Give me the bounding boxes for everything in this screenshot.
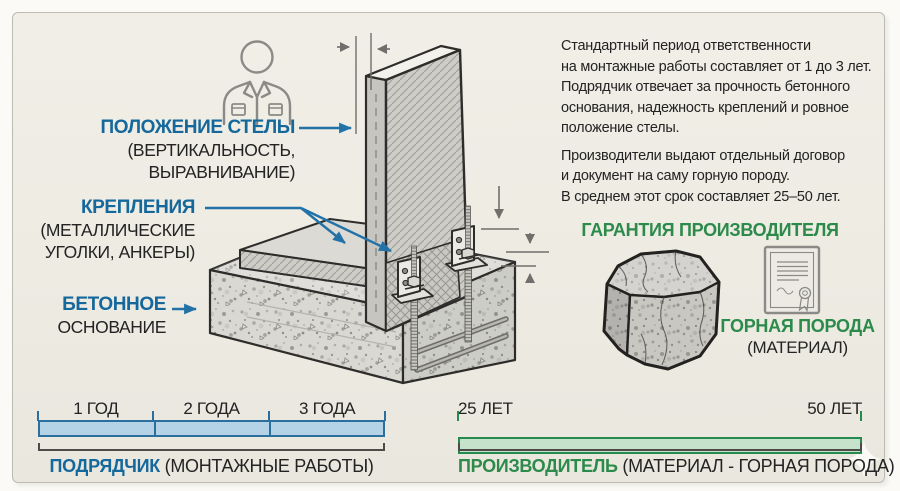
callout-title: ПОЛОЖЕНИЕ СТЕЛЫ — [40, 117, 295, 139]
contractor-label-note: (МОНТАЖНЫЕ РАБОТЫ) — [165, 456, 374, 476]
worker-icon — [224, 42, 290, 125]
info-line: В среднем этот срок составляет 25–50 лет… — [561, 187, 891, 208]
manufacturer-label-note: (МАТЕРИАЛ - ГОРНАЯ ПОРОДА) — [622, 456, 894, 476]
material-title: ГОРНАЯ ПОРОДА — [700, 316, 895, 337]
callout-line: (МЕТАЛЛИЧЕСКИЕ — [28, 219, 195, 241]
material-sub: (МАТЕРИАЛ) — [700, 337, 895, 358]
callout-stele-position: ПОЛОЖЕНИЕ СТЕЛЫ (ВЕРТИКАЛЬНОСТЬ, ВЫРАВНИ… — [40, 117, 295, 183]
contractor-label: ПОДРЯДЧИК — [49, 456, 159, 476]
callout-fasteners: КРЕПЛЕНИЯ (МЕТАЛЛИЧЕСКИЕ УГОЛКИ, АНКЕРЫ) — [28, 197, 195, 263]
material-caption: ГОРНАЯ ПОРОДА (МАТЕРИАЛ) — [700, 316, 895, 358]
callout-line: (ВЕРТИКАЛЬНОСТЬ, — [40, 139, 295, 161]
callout-title: КРЕПЛЕНИЯ — [28, 197, 195, 219]
info-line: положение стелы. — [561, 118, 891, 139]
callout-line: ВЫРАВНИВАНИЕ) — [40, 161, 295, 183]
manufacturer-label: ПРОИЗВОДИТЕЛЬ — [458, 456, 618, 476]
tick-label: 3 ГОДА — [269, 399, 385, 419]
contractor-timeline-bar — [38, 420, 385, 437]
info-line: основания, надежность креплений и ровное — [561, 98, 891, 119]
callout-line: УГОЛКИ, АНКЕРЫ) — [28, 241, 195, 263]
info-line: и документ на саму горную породу. — [561, 166, 891, 187]
bar-divider — [154, 422, 156, 435]
tick-label: 25 ЛЕТ — [458, 399, 513, 419]
tick-label: 1 ГОД — [38, 399, 154, 419]
manufacturer-timeline-ticks: 25 ЛЕТ 50 ЛЕТ — [458, 399, 862, 419]
info-text-block: Стандартный период ответственности на мо… — [561, 36, 891, 207]
info-line: Подрядчик отвечает за прочность бетонног… — [561, 77, 891, 98]
info-paragraph-1: Стандартный период ответственности на мо… — [561, 36, 891, 139]
tick-label: 50 ЛЕТ — [807, 399, 862, 419]
certificate-icon — [765, 247, 819, 313]
manufacturer-bracket — [458, 443, 862, 451]
contractor-caption: ПОДРЯДЧИК (МОНТАЖНЫЕ РАБОТЫ) — [38, 456, 385, 477]
warranty-heading: ГАРАНТИЯ ПРОИЗВОДИТЕЛЯ — [565, 220, 855, 241]
callout-foundation: БЕТОННОЕ ОСНОВАНИЕ — [18, 294, 166, 338]
manufacturer-caption: ПРОИЗВОДИТЕЛЬ (МАТЕРИАЛ - ГОРНАЯ ПОРОДА) — [458, 456, 862, 477]
info-line: Стандартный период ответственности — [561, 36, 891, 57]
timeline-tick — [457, 411, 459, 421]
contractor-timeline-ticks: 1 ГОД 2 ГОДА 3 ГОДА — [38, 399, 385, 419]
callout-title: БЕТОННОЕ — [18, 294, 166, 316]
anchor-rod — [411, 300, 418, 370]
tick-label: 2 ГОДА — [154, 399, 270, 419]
info-line: Производители выдают отдельный договор — [561, 146, 891, 167]
timeline-tick — [860, 411, 862, 421]
info-line: на монтажные работы составляет от 1 до 3… — [561, 57, 891, 78]
anchor-rod — [465, 268, 472, 342]
contractor-bracket — [38, 443, 385, 451]
callout-line: ОСНОВАНИЕ — [18, 316, 166, 338]
info-paragraph-2: Производители выдают отдельный договор и… — [561, 146, 891, 208]
bar-divider — [269, 422, 271, 435]
